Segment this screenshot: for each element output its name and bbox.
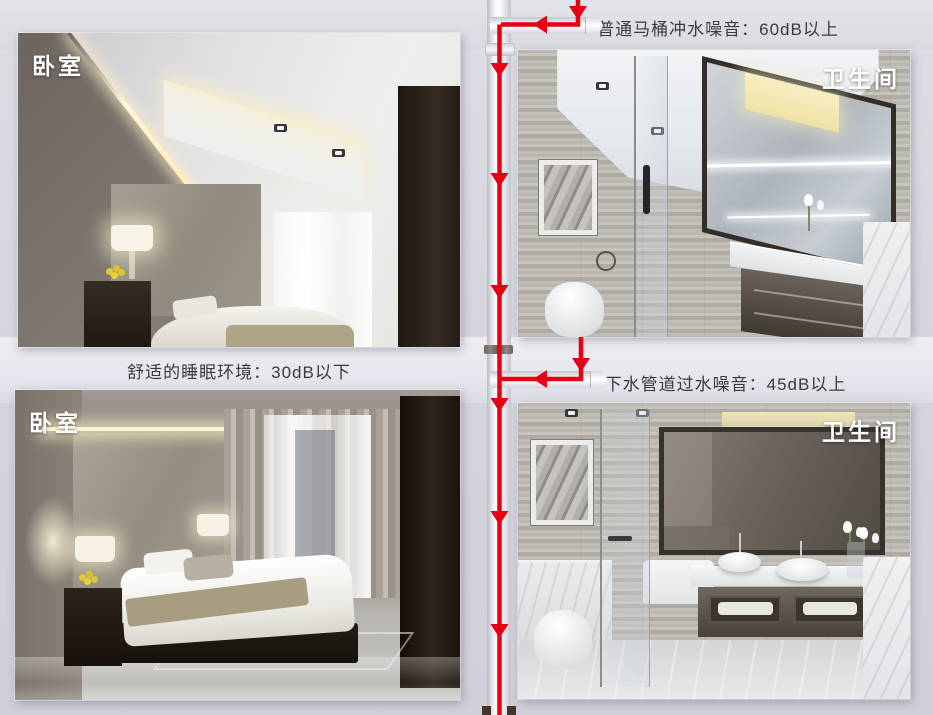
- flow-arrow-down-icon: [491, 173, 509, 187]
- flow-arrow-down-icon: [491, 511, 509, 525]
- flow-arrow-down-icon: [569, 6, 587, 20]
- room-label-bathroom: 卫生间: [822, 60, 900, 94]
- flow-line-branch-middle: [501, 337, 581, 379]
- flow-arrow-left-icon: [533, 16, 547, 34]
- flow-arrow-left-icon: [533, 370, 547, 388]
- room-label-bathroom: 卫生间: [822, 413, 900, 447]
- flow-arrow-down-icon: [491, 624, 509, 638]
- room-label-bedroom: 卧室: [29, 404, 81, 438]
- flow-arrow-down-icon: [491, 398, 509, 412]
- room-label-bedroom: 卧室: [32, 47, 84, 81]
- flow-arrow-down-icon: [572, 358, 590, 372]
- noise-comparison-infographic: 普通马桶冲水噪音：60dB以上 舒适的睡眠环境：30dB以下 下水管道过水噪音：…: [0, 0, 933, 715]
- water-flow-diagram: [0, 0, 933, 715]
- flow-arrow-down-icon: [491, 63, 509, 77]
- flow-arrow-down-icon: [491, 285, 509, 299]
